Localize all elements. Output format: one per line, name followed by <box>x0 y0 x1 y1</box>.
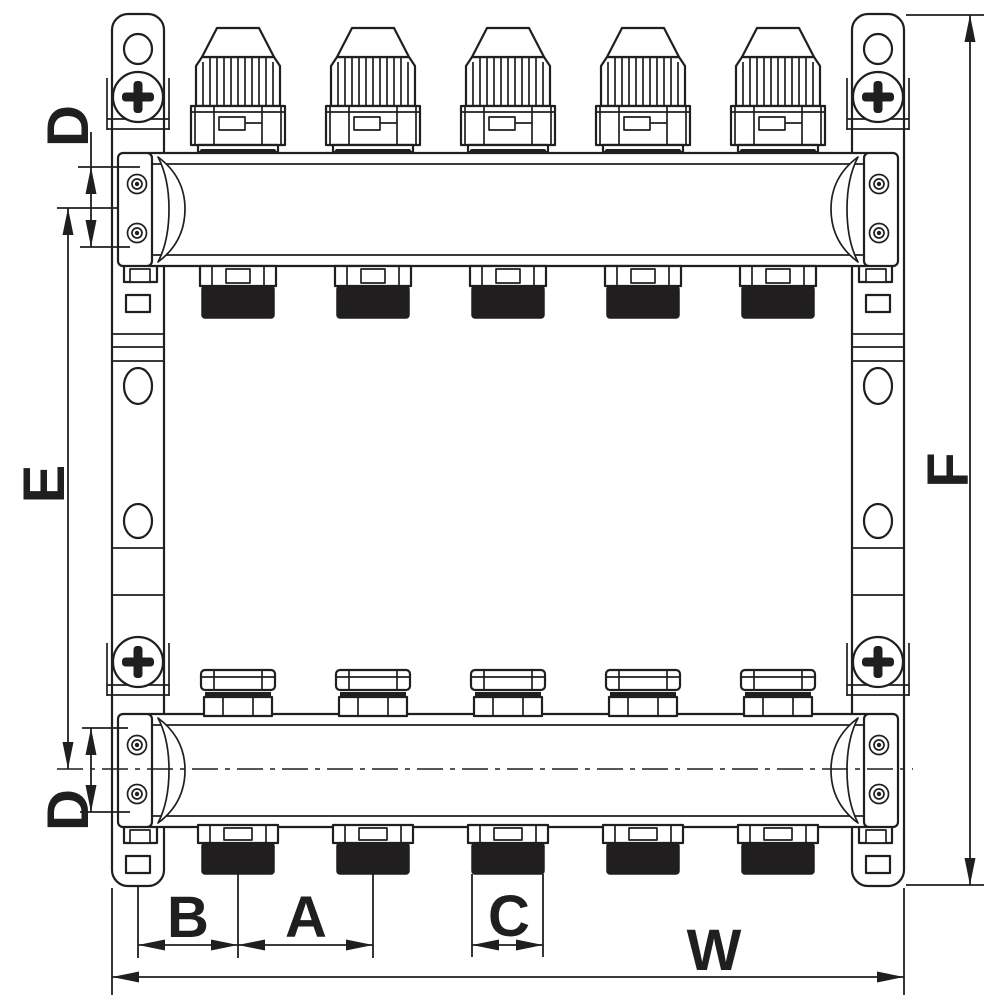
cap-fitting <box>741 670 815 716</box>
dim-label-f: F <box>916 452 981 487</box>
dim-label-b: B <box>167 885 209 950</box>
cap-fitting <box>201 670 275 716</box>
outlet-port <box>468 825 548 874</box>
outlet-port <box>333 825 413 874</box>
outlet-port <box>605 266 681 318</box>
dim-label-a: A <box>285 885 327 950</box>
dim-label-d-top: D <box>36 105 101 147</box>
dim-label-e: E <box>12 465 77 504</box>
outlet-port <box>200 266 276 318</box>
outlet-port <box>335 266 411 318</box>
cap-fitting <box>606 670 680 716</box>
cap-fitting <box>336 670 410 716</box>
bottom-manifold-bar <box>148 714 868 827</box>
drawing-canvas: D E D F B A C W <box>0 0 1000 1000</box>
dim-label-d-bottom: D <box>36 789 101 831</box>
outlet-port <box>738 825 818 874</box>
valve-head <box>461 28 555 153</box>
dim-label-w: W <box>687 918 742 983</box>
outlet-port <box>470 266 546 318</box>
top-outlet-ports <box>200 266 816 318</box>
flow-meter-caps <box>201 670 815 716</box>
outlet-port <box>603 825 683 874</box>
manifold-dimension-drawing: D E D F B A C W <box>0 0 1000 1000</box>
dimension-f <box>906 15 984 885</box>
outlet-port <box>740 266 816 318</box>
thermostatic-valve-heads <box>191 28 825 153</box>
valve-head <box>326 28 420 153</box>
cap-fitting <box>471 670 545 716</box>
valve-head <box>731 28 825 153</box>
top-manifold-bar <box>148 153 868 266</box>
valve-head <box>596 28 690 153</box>
valve-head <box>191 28 285 153</box>
bottom-outlet-ports <box>198 825 818 874</box>
outlet-port <box>198 825 278 874</box>
dim-label-c: C <box>488 884 530 949</box>
